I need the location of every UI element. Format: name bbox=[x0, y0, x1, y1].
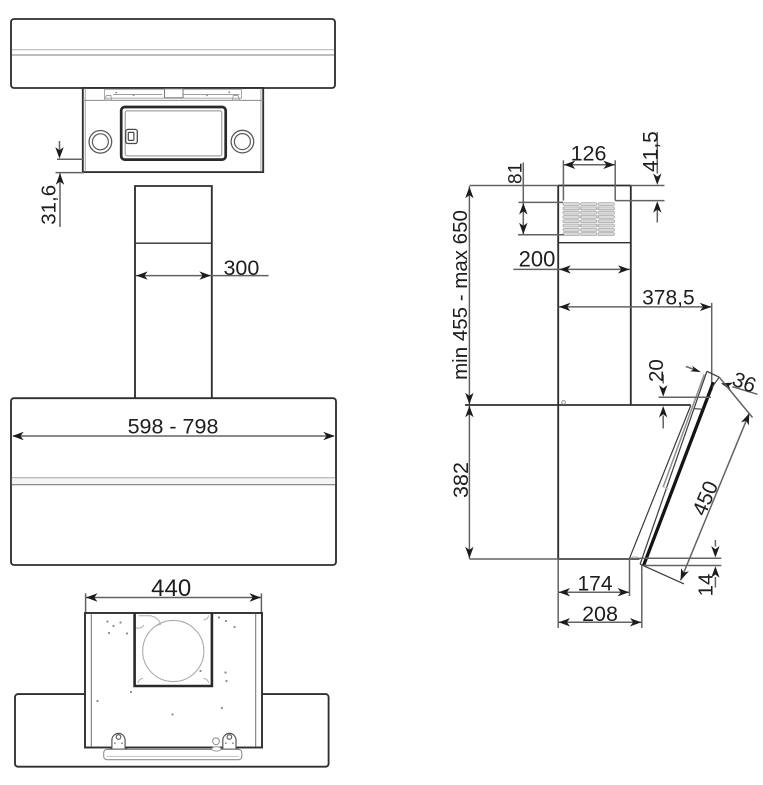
svg-text:20: 20 bbox=[645, 359, 668, 382]
svg-text:208: 208 bbox=[582, 602, 618, 626]
svg-text:14: 14 bbox=[694, 574, 717, 597]
svg-text:126: 126 bbox=[571, 141, 607, 165]
svg-text:598 - 798: 598 - 798 bbox=[128, 414, 219, 438]
svg-text:440: 440 bbox=[151, 575, 191, 602]
svg-text:300: 300 bbox=[223, 256, 259, 280]
svg-text:81: 81 bbox=[506, 163, 527, 184]
svg-text:382: 382 bbox=[449, 462, 473, 498]
svg-text:174: 174 bbox=[577, 573, 612, 596]
svg-text:31,6: 31,6 bbox=[38, 185, 61, 225]
svg-text:378,5: 378,5 bbox=[642, 286, 695, 309]
svg-text:200: 200 bbox=[519, 247, 556, 272]
svg-text:min 455 - max 650: min 455 - max 650 bbox=[449, 210, 472, 380]
svg-text:41,5: 41,5 bbox=[640, 131, 663, 172]
